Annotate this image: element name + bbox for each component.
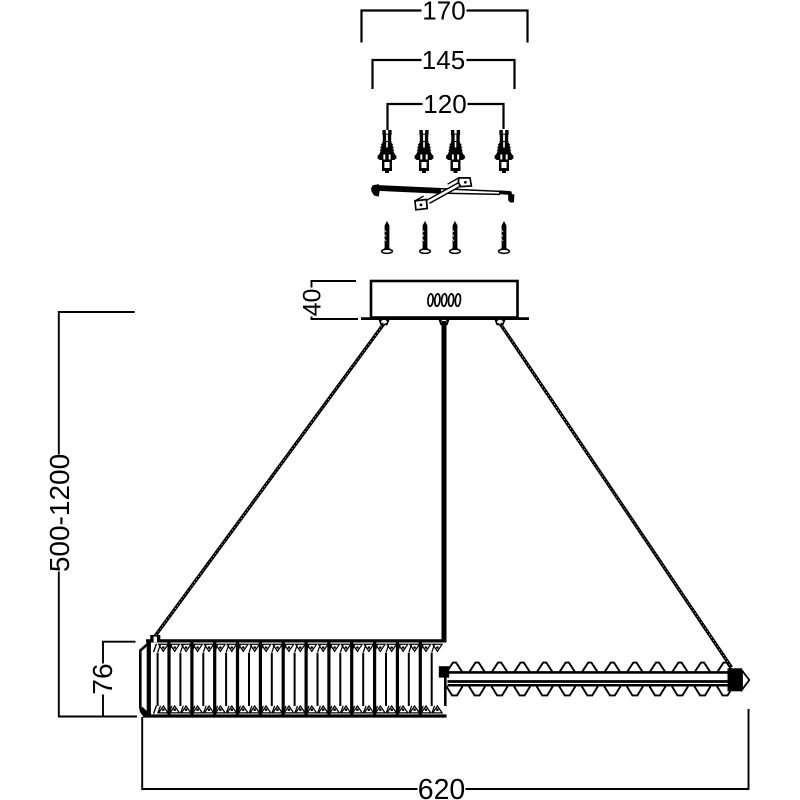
- svg-text:40: 40: [299, 289, 327, 317]
- svg-text:120: 120: [423, 89, 466, 119]
- svg-text:76: 76: [87, 663, 118, 694]
- svg-text:170: 170: [422, 0, 465, 26]
- svg-text:500-1200: 500-1200: [44, 454, 75, 572]
- svg-text:145: 145: [422, 45, 465, 75]
- svg-text:620: 620: [418, 774, 466, 800]
